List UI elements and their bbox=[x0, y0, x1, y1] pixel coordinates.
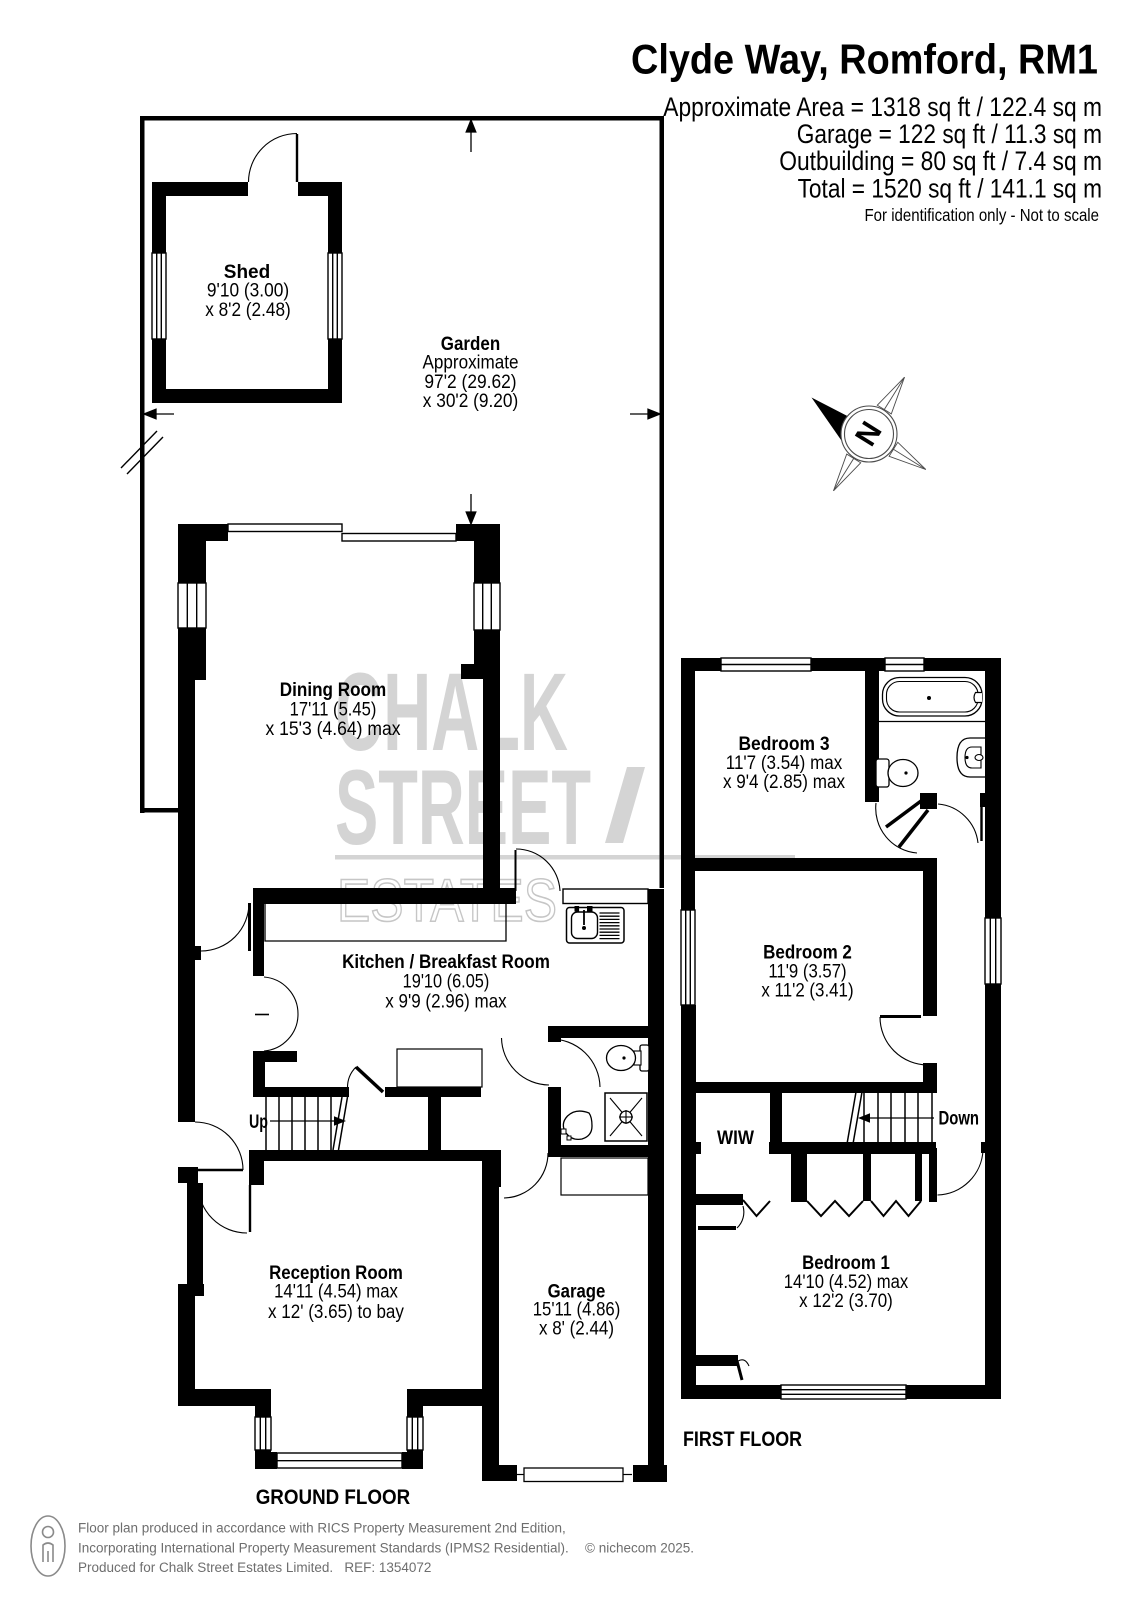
svg-text:15'11 (4.86): 15'11 (4.86) bbox=[533, 1300, 621, 1321]
svg-text:11'9 (3.57): 11'9 (3.57) bbox=[768, 962, 846, 983]
svg-text:FIRST FLOOR: FIRST FLOOR bbox=[683, 1428, 802, 1451]
svg-text:Approximate: Approximate bbox=[423, 353, 519, 374]
svg-text:Garage = 122 sq ft / 11.3 sq m: Garage = 122 sq ft / 11.3 sq m bbox=[797, 119, 1102, 149]
svg-text:14'11 (4.54) max: 14'11 (4.54) max bbox=[274, 1282, 398, 1303]
svg-text:97'2 (29.62): 97'2 (29.62) bbox=[424, 372, 516, 393]
svg-text:x 12'2 (3.70): x 12'2 (3.70) bbox=[799, 1291, 893, 1312]
svg-text:x 9'9 (2.96) max: x 9'9 (2.96) max bbox=[385, 992, 507, 1013]
svg-text:Bedroom 2: Bedroom 2 bbox=[763, 943, 852, 964]
svg-text:x 11'2 (3.41): x 11'2 (3.41) bbox=[761, 981, 853, 1002]
svg-text:Outbuilding = 80 sq ft / 7.4 s: Outbuilding = 80 sq ft / 7.4 sq m bbox=[779, 146, 1102, 176]
svg-text:Clyde Way, Romford, RM1: Clyde Way, Romford, RM1 bbox=[631, 36, 1098, 83]
svg-text:Dining Room: Dining Room bbox=[280, 680, 386, 701]
svg-text:x 30'2 (9.20): x 30'2 (9.20) bbox=[423, 391, 518, 412]
svg-text:Floor plan produced in accorda: Floor plan produced in accordance with R… bbox=[78, 1521, 566, 1536]
svg-text:For identification only - Not: For identification only - Not to scale bbox=[865, 205, 1100, 225]
svg-text:x 15'3 (4.64) max: x 15'3 (4.64) max bbox=[266, 719, 401, 740]
svg-text:Incorporating International Pr: Incorporating International Property Mea… bbox=[78, 1541, 569, 1556]
svg-text:11'7 (3.54) max: 11'7 (3.54) max bbox=[726, 753, 843, 774]
svg-text:WIW: WIW bbox=[717, 1128, 754, 1149]
svg-text:17'11 (5.45): 17'11 (5.45) bbox=[290, 700, 377, 721]
svg-text:Up: Up bbox=[249, 1112, 268, 1133]
svg-text:14'10 (4.52) max: 14'10 (4.52) max bbox=[784, 1272, 909, 1293]
svg-text:x 9'4 (2.85) max: x 9'4 (2.85) max bbox=[723, 772, 845, 793]
svg-text:© nichecom 2025.: © nichecom 2025. bbox=[585, 1541, 694, 1556]
svg-text:Approximate Area = 1318 sq ft: Approximate Area = 1318 sq ft / 122.4 sq… bbox=[663, 92, 1102, 122]
svg-text:x 12' (3.65) to bay: x 12' (3.65) to bay bbox=[268, 1302, 404, 1323]
svg-text:Kitchen / Breakfast Room: Kitchen / Breakfast Room bbox=[342, 952, 550, 973]
svg-text:Produced for Chalk Street Esta: Produced for Chalk Street Estates Limite… bbox=[78, 1560, 431, 1575]
svg-text:STREET: STREET bbox=[335, 747, 591, 867]
svg-text:Bedroom 1: Bedroom 1 bbox=[802, 1253, 890, 1274]
svg-text:19'10 (6.05): 19'10 (6.05) bbox=[403, 972, 490, 993]
svg-text:Bedroom 3: Bedroom 3 bbox=[738, 734, 829, 755]
svg-text:x 8'2 (2.48): x 8'2 (2.48) bbox=[205, 300, 291, 321]
svg-text:Total = 1520 sq ft / 141.1 sq: Total = 1520 sq ft / 141.1 sq m bbox=[798, 174, 1102, 204]
svg-text:Down: Down bbox=[939, 1109, 980, 1130]
svg-text:x 8' (2.44): x 8' (2.44) bbox=[539, 1319, 614, 1340]
svg-text:9'10 (3.00): 9'10 (3.00) bbox=[207, 281, 289, 302]
svg-text:GROUND FLOOR: GROUND FLOOR bbox=[256, 1486, 411, 1509]
